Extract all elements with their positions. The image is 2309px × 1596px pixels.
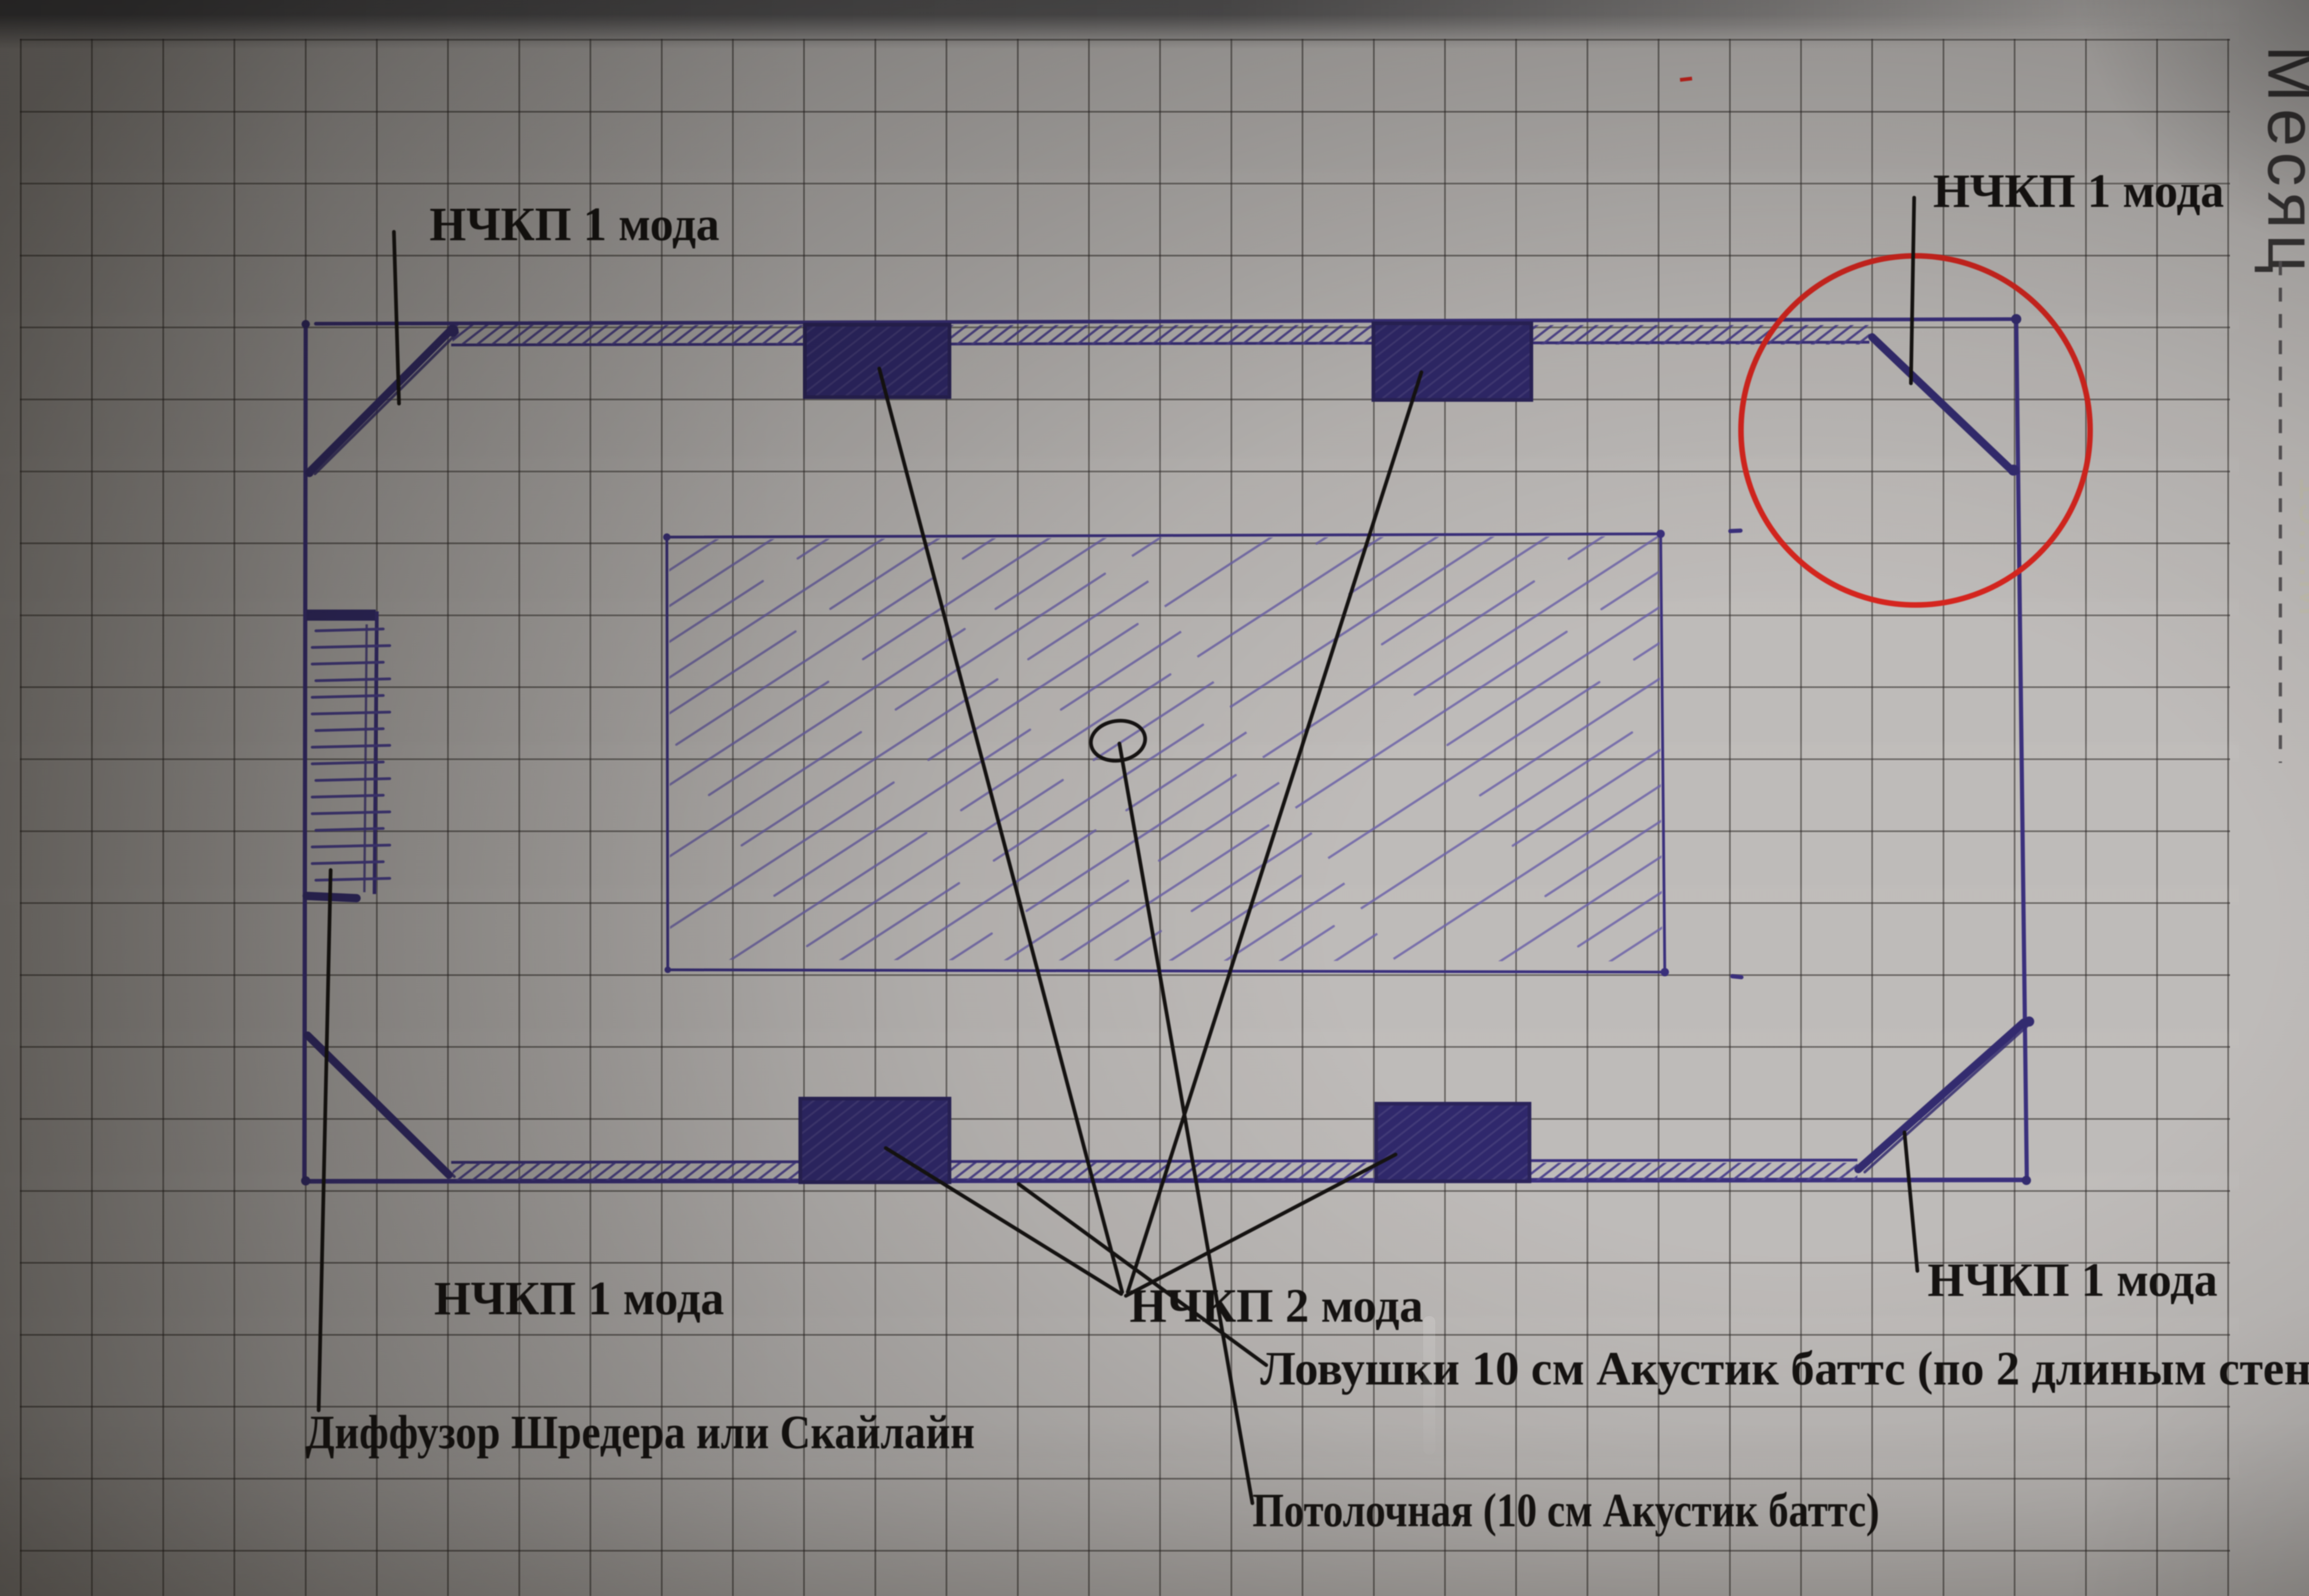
svg-text:Месяц: Месяц [2254, 45, 2309, 279]
svg-text:19....М: 19....М [2290, 476, 2309, 617]
svg-text:НЧКП 1 мода: НЧКП 1 мода [1933, 164, 2224, 218]
svg-text:Потолочная (10 см Акустик батт: Потолочная (10 см Акустик баттс) [1252, 1484, 1880, 1537]
svg-text:НЧКП 1 мода: НЧКП 1 мода [1928, 1253, 2218, 1306]
svg-text:НЧКП 1 мода: НЧКП 1 мода [429, 198, 719, 251]
svg-text:Ловушки 10 см Акустик баттс (п: Ловушки 10 см Акустик баттс (по 2 длиным… [1260, 1342, 2309, 1395]
svg-text:Диффузор Шредера или Скайлайн: Диффузор Шредера или Скайлайн [305, 1406, 975, 1459]
svg-text:НЧКП 2 мода: НЧКП 2 мода [1130, 1279, 1423, 1332]
svg-text:НЧКП 1 мода: НЧКП 1 мода [434, 1272, 724, 1325]
